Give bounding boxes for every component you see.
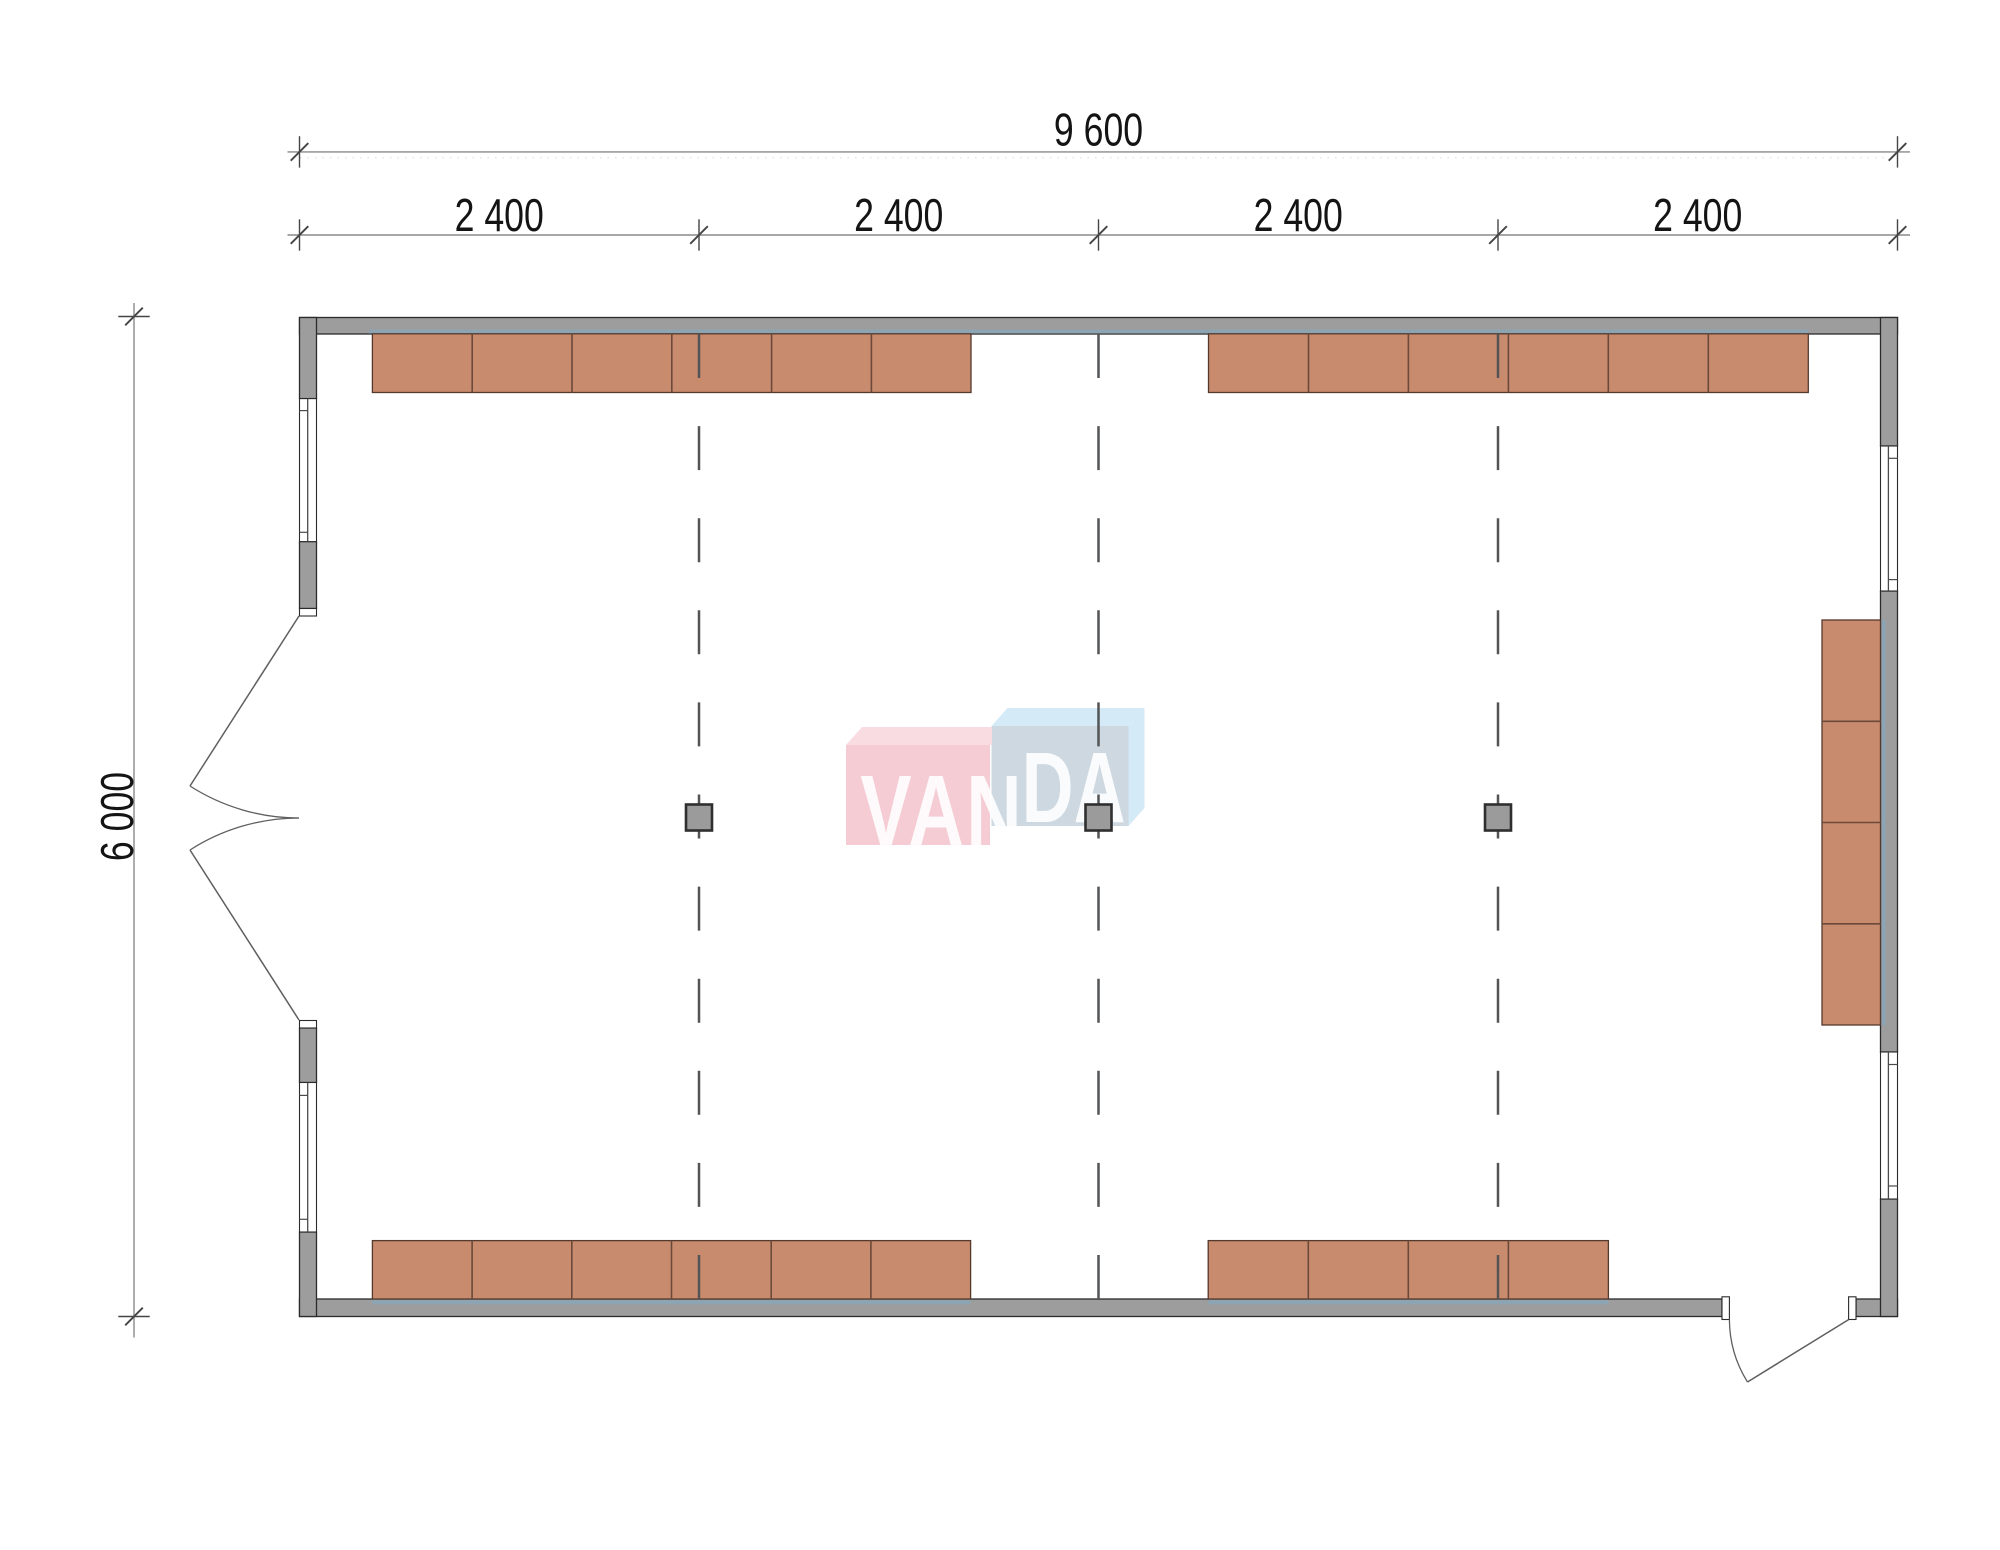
svg-text:6 000: 6 000 [92,772,143,861]
svg-text:2 400: 2 400 [455,190,544,241]
svg-text:9 600: 9 600 [1054,104,1143,155]
svg-text:2 400: 2 400 [1653,190,1742,241]
svg-text:2 400: 2 400 [854,190,943,241]
svg-text:2 400: 2 400 [1254,190,1343,241]
